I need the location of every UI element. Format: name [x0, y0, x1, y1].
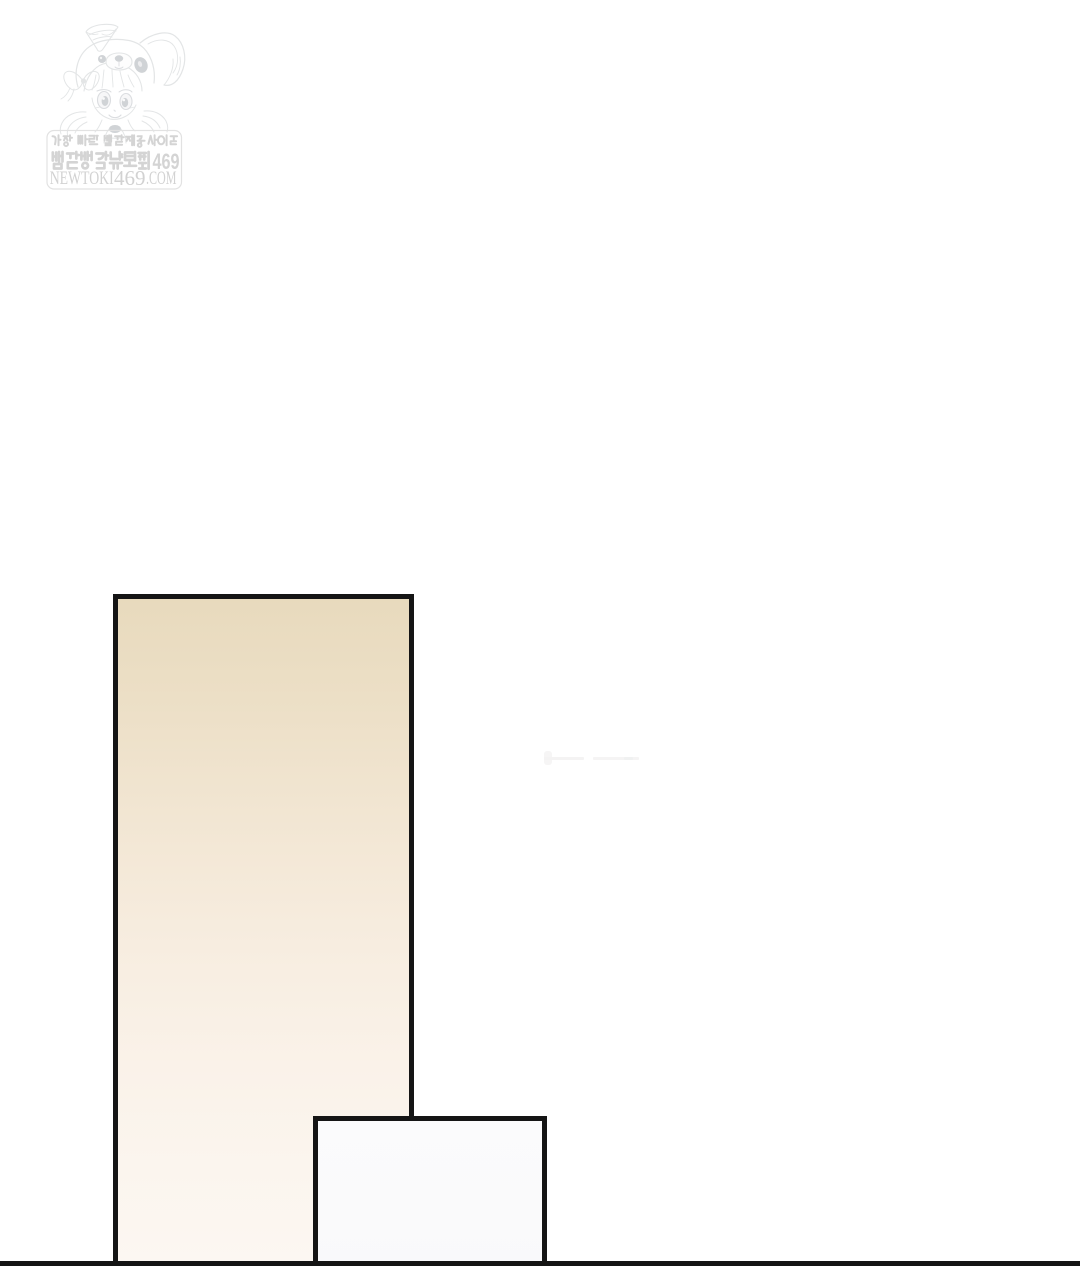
svg-text:469: 469	[114, 166, 146, 190]
svg-text:.COM: .COM	[146, 168, 177, 189]
svg-text:NEWTOKI: NEWTOKI	[50, 168, 114, 189]
